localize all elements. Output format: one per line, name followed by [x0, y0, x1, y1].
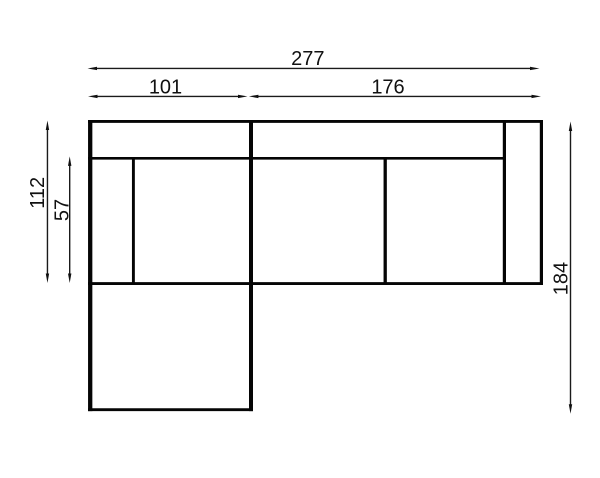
svg-text:176: 176 [371, 77, 404, 99]
svg-text:112: 112 [27, 177, 49, 209]
svg-text:184: 184 [550, 262, 572, 295]
svg-text:101: 101 [149, 77, 182, 99]
svg-text:277: 277 [291, 48, 324, 70]
svg-text:57: 57 [52, 199, 74, 221]
